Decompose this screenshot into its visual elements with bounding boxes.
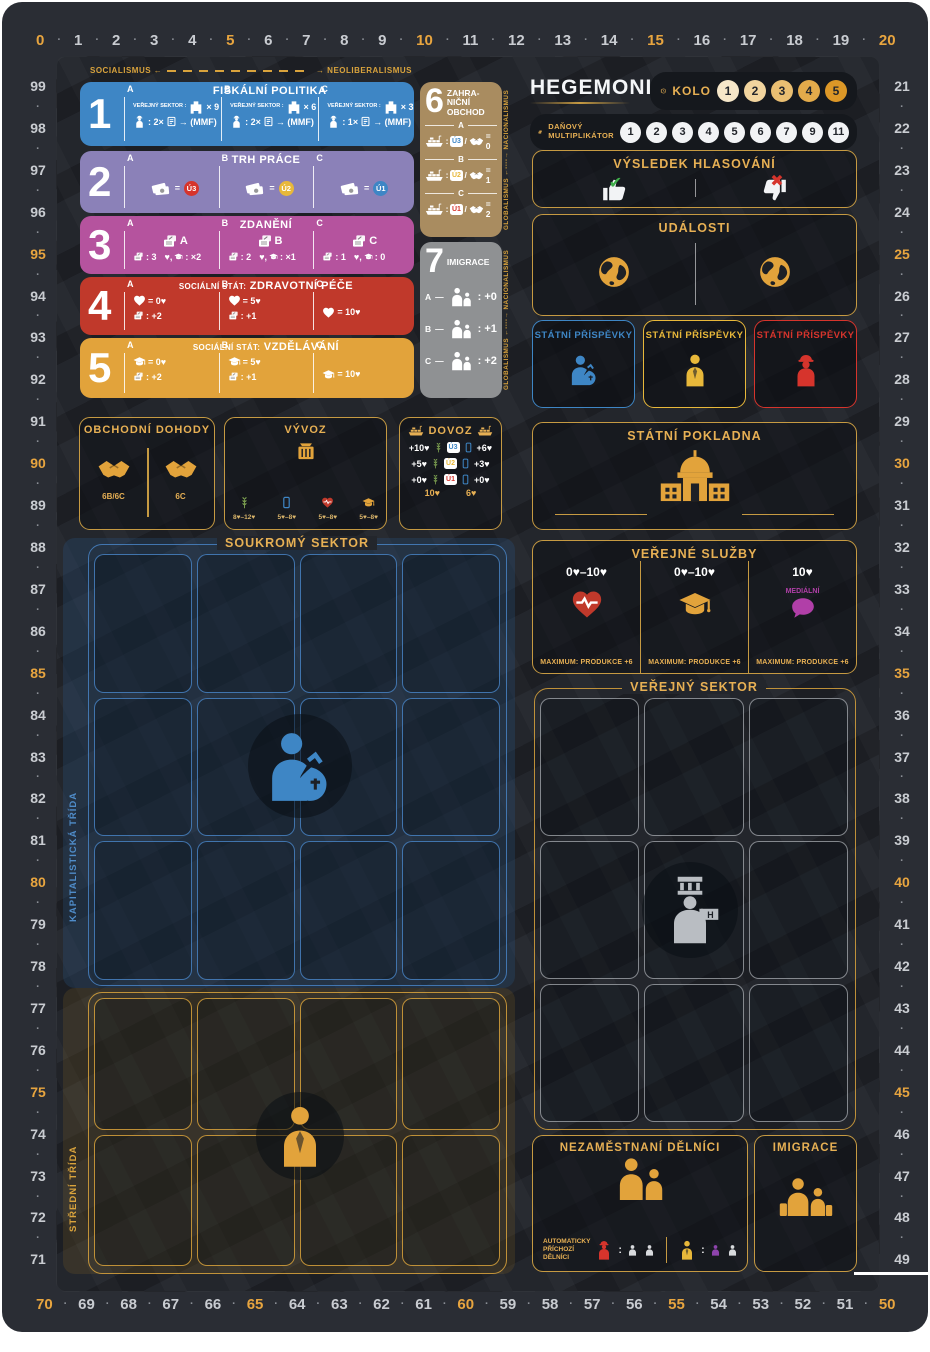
option-letter: A (127, 218, 134, 228)
card-slot[interactable] (300, 554, 398, 693)
track-dot: · (36, 1235, 40, 1241)
track-dot: · (611, 1301, 615, 1307)
policy-option-4a[interactable]: A = 0♥ : +2 (124, 292, 219, 330)
track-cell-48[interactable]: 48 (894, 1209, 910, 1225)
grad-cap-icon (362, 496, 375, 509)
tax-multiplier-circle-3[interactable]: 3 (672, 122, 693, 143)
trade-value: = 2 (486, 199, 497, 219)
track-cell-88[interactable]: 88 (30, 539, 46, 555)
track-cell-71[interactable]: 71 (30, 1251, 46, 1267)
track-dot: · (361, 37, 365, 43)
card-slot[interactable] (197, 554, 295, 693)
track-cell-34[interactable]: 34 (894, 623, 910, 639)
crew-count: : 2× (245, 117, 261, 127)
track-cell-3[interactable]: 3 (150, 32, 158, 49)
track-cell-57[interactable]: 57 (584, 1296, 601, 1313)
contribution-title: STÁTNÍ PŘÍSPĚVKY (533, 330, 634, 341)
import-panel[interactable]: DOVOZ +10♥Ú3+6♥ +5♥Ú2+3♥ +0♥Ú1+0♥ 10♥6♥ (399, 417, 502, 530)
track-cell-91[interactable]: 91 (30, 413, 46, 429)
service-mult: : ×2 (185, 252, 201, 262)
grad-cap-icon (364, 252, 373, 261)
track-dot: · (64, 1301, 68, 1307)
phone-icon (463, 442, 474, 453)
tax-multiplier-circle-7[interactable]: 7 (776, 122, 797, 143)
export-item-agriculture: 8♥–12♥ (233, 494, 255, 521)
track-cell-55[interactable]: 55 (668, 1296, 685, 1313)
tax-multiplier-circle-5[interactable]: 5 (724, 122, 745, 143)
track-cell-46[interactable]: 46 (894, 1126, 910, 1142)
option-letter: C (316, 153, 323, 163)
immigration-option-a[interactable]: A—: +0 (425, 287, 497, 307)
track-dot: · (443, 1301, 447, 1307)
card-slot[interactable] (402, 841, 500, 980)
track-cell-65[interactable]: 65 (247, 1296, 264, 1313)
track-dot: · (584, 37, 588, 43)
policy-title-immigration: IMIGRACE (447, 246, 490, 267)
track-cell-18[interactable]: 18 (786, 32, 803, 49)
grad-cap-icon (133, 355, 146, 368)
state-treasury-panel[interactable]: STÁTNÍ POKLADNA (532, 422, 857, 530)
state-contribution-worker[interactable]: STÁTNÍ PŘÍSPĚVKY (754, 320, 857, 408)
track-dot: · (900, 900, 904, 906)
tax-card-icon (133, 371, 144, 382)
track-cell-51[interactable]: 51 (837, 1296, 854, 1313)
card-slot[interactable] (94, 554, 192, 693)
policy-option-5a[interactable]: A = 0♥ : +2 (124, 353, 219, 393)
track-cell-21[interactable]: 21 (894, 78, 910, 94)
trade-option-b[interactable]: B :Ú2/= 1 (425, 155, 497, 185)
track-cell-43[interactable]: 43 (894, 1000, 910, 1016)
track-cell-7[interactable]: 7 (302, 32, 310, 49)
game-board: 0·1·2·3·4·5·6·7·8·9·10·11·12·13·14·15·16… (2, 2, 928, 1332)
track-cell-93[interactable]: 93 (30, 329, 46, 345)
public-sector-label: VEŘEJNÝ SEKTOR : (133, 104, 186, 110)
track-cell-33[interactable]: 33 (894, 581, 910, 597)
cross-icon: ✖ (770, 171, 783, 191)
track-dot: · (209, 37, 213, 43)
building-icon (383, 99, 399, 115)
heart-pulse-icon (133, 294, 146, 307)
track-cell-27[interactable]: 27 (894, 329, 910, 345)
track-cell-16[interactable]: 16 (693, 32, 710, 49)
track-dot: · (95, 37, 99, 43)
card-slot[interactable] (197, 841, 295, 980)
immigration-option-b[interactable]: B—: +1 (425, 319, 497, 339)
option-letter: A (127, 153, 134, 163)
card-slot[interactable] (749, 984, 848, 1122)
card-slot[interactable] (402, 998, 500, 1130)
round-circle-4[interactable]: 4 (798, 80, 820, 102)
track-dot: · (900, 272, 904, 278)
tax-multiplier-circle-9[interactable]: 9 (802, 122, 823, 143)
track-cell-44[interactable]: 44 (894, 1042, 910, 1058)
policy-option-2b[interactable]: B =Ú2 (219, 166, 314, 208)
track-cell-20[interactable]: 20 (879, 32, 896, 49)
track-cell-63[interactable]: 63 (331, 1296, 348, 1313)
track-cell-49[interactable]: 49 (894, 1251, 910, 1267)
policy-option-4b[interactable]: B = 5♥ : +1 (219, 292, 314, 330)
heart-pulse-icon (570, 587, 604, 621)
track-cell-58[interactable]: 58 (542, 1296, 559, 1313)
option-letter: C (316, 279, 323, 289)
track-cell-17[interactable]: 17 (740, 32, 757, 49)
track-cell-89[interactable]: 89 (30, 497, 46, 513)
track-dot: · (36, 1110, 40, 1116)
track-dot: · (36, 565, 40, 571)
multiplier: × 3 (401, 102, 414, 112)
track-cell-78[interactable]: 78 (30, 958, 46, 974)
track-dot: · (36, 858, 40, 864)
capitol-icon (658, 449, 732, 505)
doc-icon (263, 116, 274, 127)
export-item-healthcare: 5♥–8♥ (318, 494, 337, 521)
mmf-label: → (MMF) (276, 117, 314, 127)
track-cell-19[interactable]: 19 (833, 32, 850, 49)
track-cell-60[interactable]: 60 (457, 1296, 474, 1313)
track-cell-81[interactable]: 81 (30, 832, 46, 848)
vote-no-slot[interactable]: ✖ (762, 177, 788, 203)
globe-icon[interactable] (758, 255, 792, 289)
worker-icon (327, 115, 340, 128)
track-dot: · (36, 523, 40, 529)
round-circle-3[interactable]: 3 (771, 80, 793, 102)
policy-number-6: 6 (425, 86, 444, 117)
track-cell-42[interactable]: 42 (894, 958, 910, 974)
policy-option-1b[interactable]: B VEŘEJNÝ SEKTOR :× 6 : 2×→ (MMF) (221, 97, 318, 141)
track-cell-85[interactable]: 85 (30, 665, 46, 681)
tax-bonus: : +2 (146, 372, 162, 382)
ship-icon (425, 133, 444, 149)
card-slot[interactable] (402, 698, 500, 837)
unemployed-title: NEZAMĚSTNANÍ DĚLNÍCI (533, 1136, 747, 1154)
policy-option-3a[interactable]: A A : 3♥,: ×2 (124, 231, 219, 269)
track-cell-4[interactable]: 4 (188, 32, 196, 49)
public-services-panel: VEŘEJNÉ SLUŽBY 0♥–10♥ MAXIMUM: PRODUKCE … (532, 540, 857, 674)
ship-icon (408, 424, 424, 437)
option-letter: A (127, 340, 134, 350)
card-slot[interactable] (540, 984, 639, 1122)
track-cell-50[interactable]: 50 (879, 1296, 896, 1313)
track-cell-8[interactable]: 8 (340, 32, 348, 49)
track-cell-36[interactable]: 36 (894, 707, 910, 723)
service-range: 0♥–10♥ (533, 565, 640, 579)
round-circle-5[interactable]: 5 (825, 80, 847, 102)
track-cell-13[interactable]: 13 (554, 32, 571, 49)
tax-multiplier-circle-11[interactable]: 11 (828, 122, 849, 143)
export-title: VÝVOZ (225, 418, 386, 436)
track-dot: · (36, 984, 40, 990)
tax-card-icon (162, 233, 178, 249)
contribution-title: STÁTNÍ PŘÍSPĚVKY (644, 330, 745, 341)
service-media[interactable]: 10♥ MEDIÁLNÍ MAXIMUM: PRODUKCE +6 (749, 561, 856, 673)
track-cell-97[interactable]: 97 (30, 162, 46, 178)
tax-multiplier-circle-4[interactable]: 4 (698, 122, 719, 143)
track-cell-74[interactable]: 74 (30, 1126, 46, 1142)
policy-option-5c[interactable]: C = 10♥ (313, 353, 408, 393)
track-cell-1[interactable]: 1 (74, 32, 82, 49)
track-dot: · (630, 37, 634, 43)
unemployed-workers-panel[interactable]: NEZAMĚSTNANÍ DĚLNÍCI AUTOMATICKYPŘÍCHOZÍ… (532, 1135, 748, 1272)
card-slot[interactable] (644, 698, 743, 836)
worker-icon (230, 115, 243, 128)
score-track-right: 21·22·23·24·25·26·27·28·29·30·31·32·33·3… (886, 78, 918, 1268)
tax-bonus: : +2 (146, 311, 162, 321)
track-cell-95[interactable]: 95 (30, 246, 46, 262)
ship-icon (477, 424, 493, 437)
track-cell-38[interactable]: 38 (894, 790, 910, 806)
track-dot: · (900, 1110, 904, 1116)
scan-artifact-line (854, 1272, 930, 1275)
track-cell-23[interactable]: 23 (894, 162, 910, 178)
policy-option-2a[interactable]: A =Ú3 (124, 166, 219, 208)
card-slot[interactable] (644, 984, 743, 1122)
track-cell-69[interactable]: 69 (78, 1296, 95, 1313)
track-dot: · (133, 37, 137, 43)
trade-slot-left[interactable]: 6B/6C (97, 456, 131, 501)
tax-card-icon (228, 251, 239, 262)
track-cell-26[interactable]: 26 (894, 288, 910, 304)
ideology-axis-horizontal: SOCIALISMUS ← → NEOLIBERALISMUS (90, 66, 412, 75)
track-cell-0[interactable]: 0 (36, 32, 44, 49)
round-circle-1[interactable]: 1 (717, 80, 739, 102)
track-dot: · (36, 816, 40, 822)
tax-card-icon (322, 251, 333, 262)
card-slot[interactable] (749, 698, 848, 836)
card-slot[interactable] (749, 841, 848, 979)
tax-multiplier-circle-6[interactable]: 6 (750, 122, 771, 143)
track-cell-66[interactable]: 66 (205, 1296, 222, 1313)
card-slot[interactable] (94, 998, 192, 1130)
track-cell-47[interactable]: 47 (894, 1168, 910, 1184)
speech-bubble-icon (790, 595, 816, 621)
policy-option-1a[interactable]: A VEŘEJNÝ SEKTOR :× 9 : 2×→ (MMF) (124, 97, 221, 141)
track-dot: · (36, 774, 40, 780)
service-healthcare[interactable]: 0♥–10♥ MAXIMUM: PRODUKCE +6 (533, 561, 641, 673)
ship-icon (425, 167, 444, 183)
track-dot: · (446, 37, 450, 43)
round-circle-2[interactable]: 2 (744, 80, 766, 102)
track-cell-54[interactable]: 54 (710, 1296, 727, 1313)
track-cell-76[interactable]: 76 (30, 1042, 46, 1058)
track-cell-61[interactable]: 61 (415, 1296, 432, 1313)
track-dot: · (538, 37, 542, 43)
track-dot: · (36, 355, 40, 361)
public-sector-title: VEŘEJNÝ SEKTOR (622, 680, 766, 694)
card-slot[interactable] (94, 841, 192, 980)
wage-badge: Ú1 (373, 181, 388, 196)
wage-badge: Ú2 (279, 181, 294, 196)
policy-option-2c[interactable]: C =Ú1 (313, 166, 408, 208)
track-cell-62[interactable]: 62 (373, 1296, 390, 1313)
container-icon (293, 438, 319, 464)
track-dot: · (900, 1152, 904, 1158)
export-item-luxury: 5♥–8♥ (278, 494, 297, 521)
vote-yes-slot[interactable]: ✔ (601, 177, 627, 203)
banknotes-icon (340, 178, 360, 198)
export-panel[interactable]: VÝVOZ 8♥–12♥ 5♥–8♥ 5♥–8♥ 5♥–8♥ (224, 417, 387, 530)
tax-card-icon (351, 233, 367, 249)
policy-option-1c[interactable]: C VEŘEJNÝ SEKTOR :× 3 : 1×→ (MMF) (318, 97, 415, 141)
track-cell-28[interactable]: 28 (894, 371, 910, 387)
trade-option-a[interactable]: A :Ú3/= 0 (425, 121, 497, 151)
service-education[interactable]: 0♥–10♥ MAXIMUM: PRODUKCE +6 (641, 561, 749, 673)
track-cell-31[interactable]: 31 (894, 497, 910, 513)
policy-title-fiscal: FISKÁLNÍ POLITIKA (124, 85, 415, 97)
track-cell-53[interactable]: 53 (752, 1296, 769, 1313)
immigration-value: : +1 (478, 323, 497, 335)
track-cell-67[interactable]: 67 (162, 1296, 179, 1313)
grad-cap-icon (322, 368, 335, 381)
trade-option-c[interactable]: C :Ú1/= 2 (425, 189, 497, 219)
track-cell-32[interactable]: 32 (894, 539, 910, 555)
track-cell-75[interactable]: 75 (30, 1084, 46, 1100)
service-value: = 5♥ (243, 357, 261, 367)
tax-multiplier-tracker: DAŇOVÝMULTIPLIKÁTOR 1234567911 (530, 114, 857, 150)
track-cell-90[interactable]: 90 (30, 455, 46, 471)
card-slot[interactable] (540, 698, 639, 836)
track-cell-83[interactable]: 83 (30, 749, 46, 765)
track-cell-99[interactable]: 99 (30, 78, 46, 94)
track-cell-86[interactable]: 86 (30, 623, 46, 639)
track-cell-70[interactable]: 70 (36, 1296, 53, 1313)
card-slot[interactable] (402, 554, 500, 693)
track-cell-92[interactable]: 92 (30, 371, 46, 387)
immigration-option-c[interactable]: C—: +2 (425, 351, 497, 371)
immigration-panel[interactable]: IMIGRACE (754, 1135, 857, 1272)
track-dot: · (654, 1301, 658, 1307)
voting-result-panel: VÝSLEDEK HLASOVÁNÍ ✔ ✖ (532, 150, 857, 208)
track-dot: · (569, 1301, 573, 1307)
track-dot: · (900, 1235, 904, 1241)
track-cell-24[interactable]: 24 (894, 204, 910, 220)
track-cell-56[interactable]: 56 (626, 1296, 643, 1313)
track-cell-9[interactable]: 9 (378, 32, 386, 49)
track-dot: · (527, 1301, 531, 1307)
policy-title-healthcare: SOCIÁLNÍ STÁT: ZDRAVOTNÍ PÉČE (124, 280, 408, 292)
track-dot: · (900, 439, 904, 445)
track-cell-68[interactable]: 68 (120, 1296, 137, 1313)
track-dot: · (900, 649, 904, 655)
option-letter: B (222, 153, 229, 163)
track-dot: · (677, 37, 681, 43)
option-letter: B (222, 218, 229, 228)
track-cell-80[interactable]: 80 (30, 874, 46, 890)
tax-value: : 3 (146, 252, 157, 262)
track-dot: · (36, 1194, 40, 1200)
track-cell-40[interactable]: 40 (894, 874, 910, 890)
policy-option-4c[interactable]: C = 10♥ (313, 292, 408, 330)
track-cell-96[interactable]: 96 (30, 204, 46, 220)
track-cell-73[interactable]: 73 (30, 1168, 46, 1184)
track-cell-52[interactable]: 52 (795, 1296, 812, 1313)
track-cell-79[interactable]: 79 (30, 916, 46, 932)
track-cell-59[interactable]: 59 (500, 1296, 517, 1313)
track-cell-37[interactable]: 37 (894, 749, 910, 765)
track-cell-12[interactable]: 12 (508, 32, 525, 49)
track-dot: · (359, 1301, 363, 1307)
policy-number-4: 4 (88, 280, 124, 332)
track-cell-45[interactable]: 45 (894, 1084, 910, 1100)
track-cell-82[interactable]: 82 (30, 790, 46, 806)
track-cell-98[interactable]: 98 (30, 120, 46, 136)
track-dot: · (36, 313, 40, 319)
service-range: 0♥–10♥ (641, 565, 748, 579)
tax-multiplier-circle-2[interactable]: 2 (646, 122, 667, 143)
track-dot: · (274, 1301, 278, 1307)
service-max: MAXIMUM: PRODUKCE +6 (749, 659, 856, 666)
track-dot: · (247, 37, 251, 43)
track-cell-10[interactable]: 10 (416, 32, 433, 49)
grad-cap-icon (678, 587, 712, 621)
track-cell-25[interactable]: 25 (894, 246, 910, 262)
wage-badge: Ú3 (450, 136, 462, 147)
track-cell-30[interactable]: 30 (894, 455, 910, 471)
service-glyphs: ♥, (165, 252, 173, 262)
track-cell-41[interactable]: 41 (894, 916, 910, 932)
policy-option-3c[interactable]: C C : 1♥,: 0 (313, 231, 408, 269)
track-cell-87[interactable]: 87 (30, 581, 46, 597)
state-contribution-capitalist[interactable]: STÁTNÍ PŘÍSPĚVKY (532, 320, 635, 408)
card-slot[interactable] (402, 1135, 500, 1267)
track-cell-77[interactable]: 77 (30, 1000, 46, 1016)
policy-option-3b[interactable]: B B : 2♥,: ×1 (219, 231, 314, 269)
globe-icon[interactable] (597, 255, 631, 289)
track-dot: · (900, 607, 904, 613)
card-slot[interactable] (300, 841, 398, 980)
card-slot[interactable] (94, 698, 192, 837)
heart-pulse-icon (321, 496, 334, 509)
policy-option-5b[interactable]: B = 5♥ : +1 (219, 353, 314, 393)
wage-badge: Ú2 (450, 170, 462, 181)
track-cell-2[interactable]: 2 (112, 32, 120, 49)
track-cell-22[interactable]: 22 (894, 120, 910, 136)
clock-icon (660, 83, 666, 99)
track-cell-72[interactable]: 72 (30, 1209, 46, 1225)
track-dot: · (36, 1152, 40, 1158)
track-cell-6[interactable]: 6 (264, 32, 272, 49)
family-icon (448, 319, 474, 339)
track-cell-39[interactable]: 39 (894, 832, 910, 848)
phone-total: 6♥ (466, 488, 476, 498)
tax-multiplier-label: DAŇOVÝMULTIPLIKÁTOR (548, 123, 614, 140)
card-slot[interactable] (540, 841, 639, 979)
track-dot: · (316, 1301, 320, 1307)
track-cell-35[interactable]: 35 (894, 665, 910, 681)
trade-slot-right[interactable]: 6C (164, 456, 198, 501)
track-dot: · (900, 1194, 904, 1200)
track-cell-29[interactable]: 29 (894, 413, 910, 429)
state-contribution-middle[interactable]: STÁTNÍ PŘÍSPĚVKY (643, 320, 746, 408)
tax-card-icon (538, 124, 542, 140)
tax-multiplier-circle-1[interactable]: 1 (620, 122, 641, 143)
doc-icon (360, 116, 371, 127)
track-cell-5[interactable]: 5 (226, 32, 234, 49)
track-cell-11[interactable]: 11 (463, 32, 479, 49)
track-cell-94[interactable]: 94 (30, 288, 46, 304)
phone-icon (460, 474, 471, 485)
track-cell-14[interactable]: 14 (601, 32, 618, 49)
track-cell-64[interactable]: 64 (289, 1296, 306, 1313)
public-sector-label: VEŘEJNÝ SEKTOR : (230, 104, 283, 110)
track-cell-84[interactable]: 84 (30, 707, 46, 723)
track-cell-15[interactable]: 15 (647, 32, 664, 49)
track-dot: · (36, 272, 40, 278)
wage-badge: Ú1 (444, 474, 457, 485)
capitalist-icon (567, 353, 601, 387)
track-dot: · (232, 1301, 236, 1307)
card-slot[interactable] (94, 1135, 192, 1267)
trade-value: = 0 (486, 131, 497, 151)
